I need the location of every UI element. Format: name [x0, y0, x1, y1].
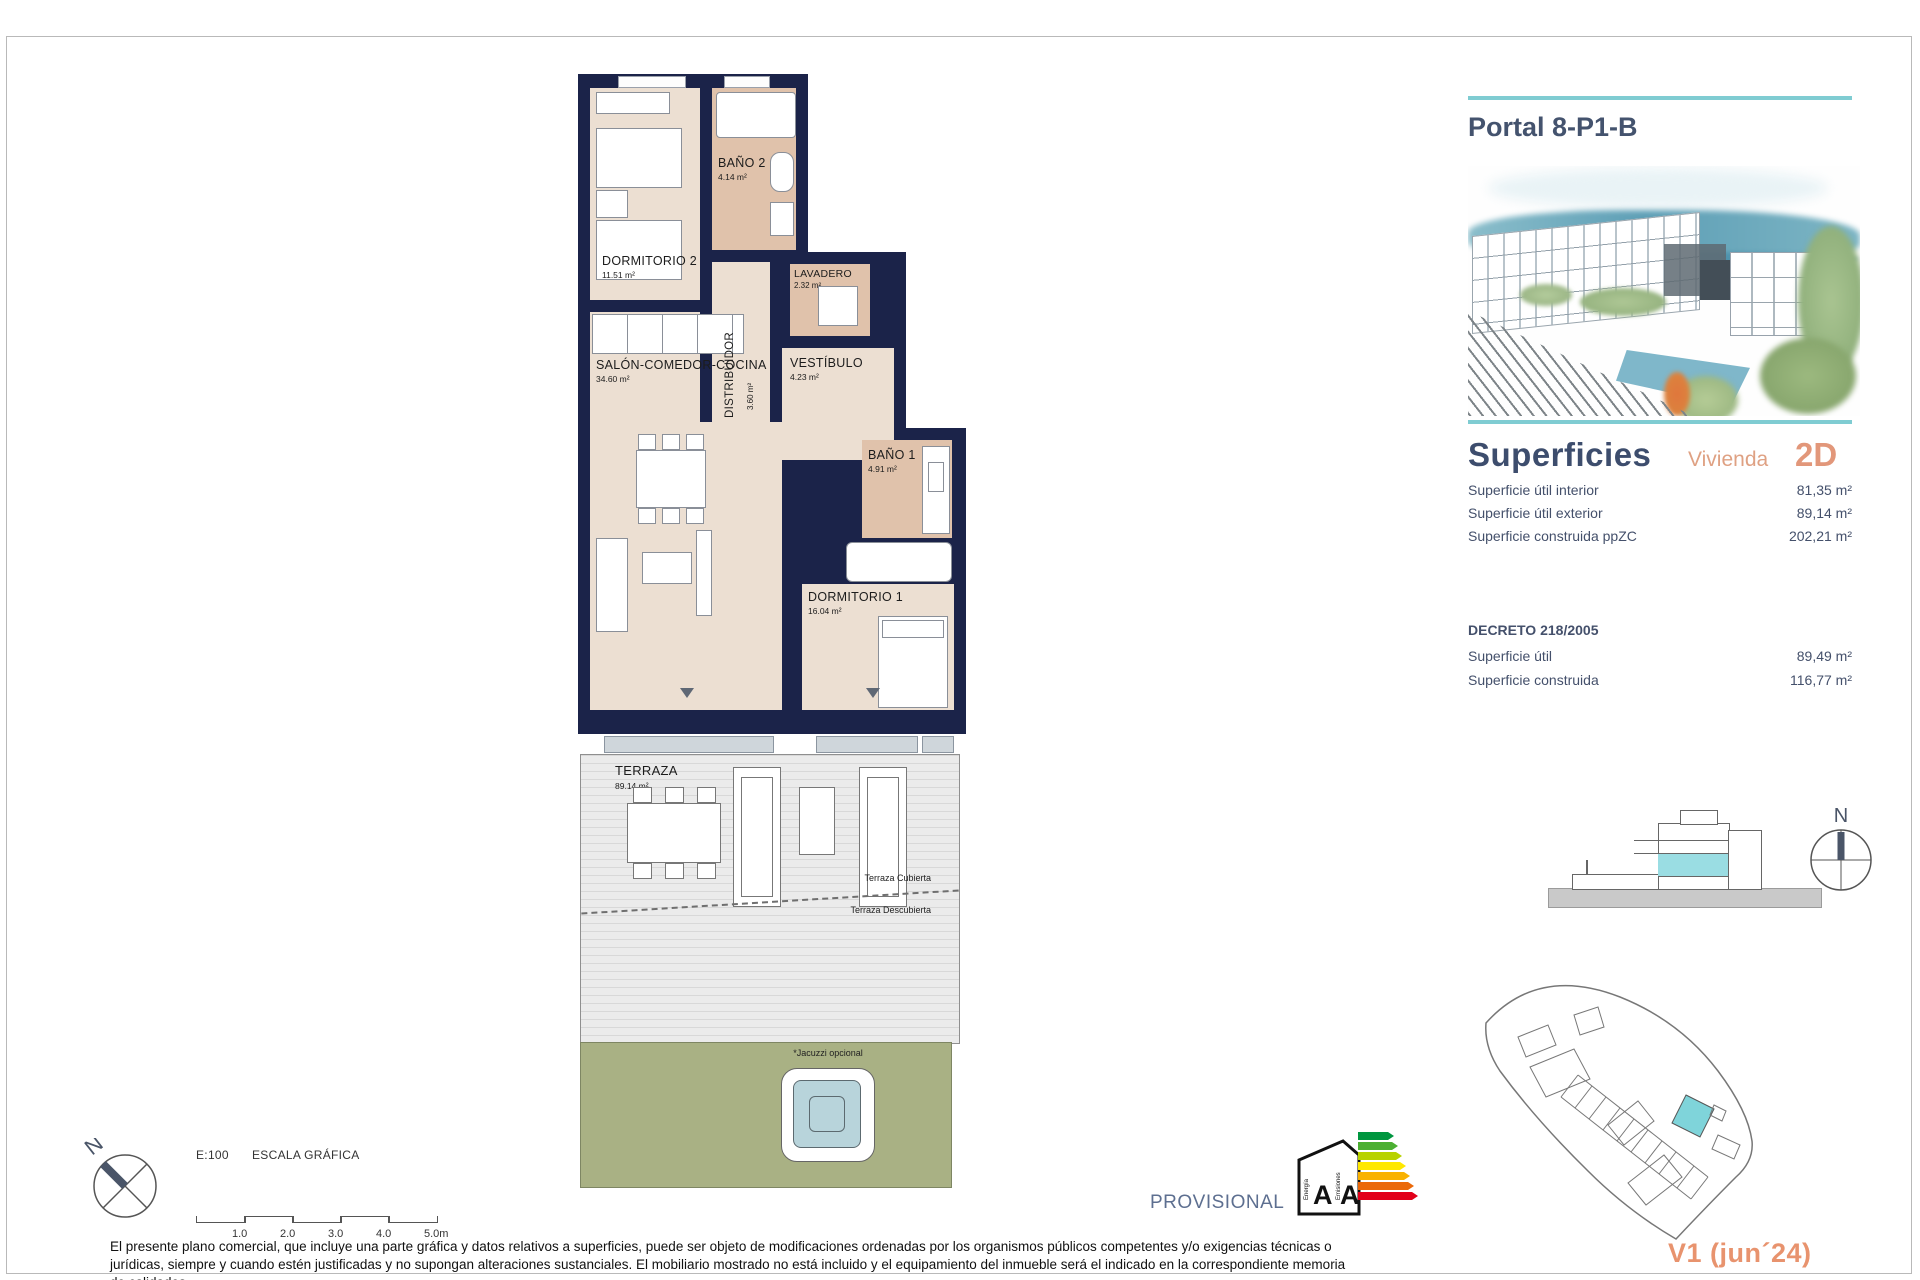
kitchen-counter: [592, 314, 744, 354]
room-label: DORMITORIO 2: [602, 254, 697, 268]
chair: [686, 508, 704, 524]
room-label: TERRAZA: [615, 763, 678, 778]
page-title: Portal 8-P1-B: [1468, 112, 1638, 143]
lawn: [1580, 288, 1666, 316]
chair: [633, 787, 652, 803]
room-label: VESTÍBULO: [790, 356, 863, 370]
chair: [662, 508, 680, 524]
bed-single: [596, 128, 682, 188]
shower: [716, 92, 796, 138]
tv-sideboard: [696, 530, 712, 616]
energy-bar-e: [1358, 1172, 1410, 1180]
row-value: 81,35 m²: [1797, 482, 1852, 498]
room-area: 4.91 m²: [868, 464, 897, 474]
energy-letter1: A: [1313, 1180, 1333, 1210]
lawn: [1520, 284, 1572, 306]
sky: [1488, 168, 1828, 208]
energy-certificate-icon: Energía A Emisiones A: [1296, 1132, 1426, 1218]
chair: [686, 434, 704, 450]
room-label: SALÓN-COMEDOR-COCINA: [596, 358, 767, 372]
room-area: 4.23 m²: [790, 372, 819, 382]
compass-north-label: N: [1834, 808, 1848, 827]
balcony-line: [1634, 840, 1658, 841]
north-compass-icon: N: [80, 1138, 170, 1228]
sun-lounger-inner: [741, 777, 773, 897]
energy-bar-b: [1358, 1142, 1398, 1150]
bathtub: [846, 542, 952, 582]
energy-bar-f: [1358, 1182, 1414, 1190]
coffee-table: [642, 552, 692, 584]
chair: [665, 787, 684, 803]
sliding-door: [604, 736, 774, 753]
room-label: BAÑO 2: [718, 156, 766, 170]
room-label: DISTRIBUIDOR: [724, 268, 736, 418]
decreto-row: Superficie construida 116,77 m²: [1468, 672, 1852, 688]
energy-axis1: Energía: [1304, 1178, 1310, 1200]
compass-north-label: N: [80, 1138, 108, 1160]
row-value: 202,21 m²: [1789, 528, 1852, 544]
energy-bar-a: [1358, 1132, 1394, 1140]
legal-disclaimer: El presente plano comercial, que incluye…: [110, 1238, 1358, 1280]
side-table: [799, 787, 835, 855]
entrance-arrow-icon: [866, 688, 880, 698]
podium: [1572, 874, 1660, 890]
ground: [1548, 888, 1822, 908]
chair: [662, 434, 680, 450]
teal-rule-top: [1468, 96, 1852, 100]
room-area: 34.60 m²: [596, 374, 630, 384]
pillow: [882, 620, 944, 638]
teal-rule-mid: [1468, 420, 1852, 424]
energy-bar-g: [1358, 1192, 1418, 1200]
wardrobe: [596, 92, 670, 114]
room-area: 2.32 m²: [794, 281, 821, 290]
decreto-row: Superficie útil 89,49 m²: [1468, 648, 1852, 664]
scale-title: ESCALA GRÁFICA: [252, 1148, 360, 1162]
roof-volume: [1680, 810, 1718, 825]
sliding-door: [922, 736, 954, 753]
annex-volume: [1728, 830, 1762, 890]
nightstand: [596, 190, 628, 218]
chair: [638, 508, 656, 524]
building-section-diagram: N: [1548, 790, 1888, 920]
room-area: 16.04 m²: [808, 606, 842, 616]
project-render-image: [1468, 166, 1860, 416]
room-label: DORMITORIO 1: [808, 590, 903, 604]
superficies-heading: Superficies: [1468, 436, 1651, 474]
vivienda-type: 2D: [1795, 436, 1837, 474]
balcony-line: [1634, 853, 1658, 854]
highlighted-floor: [1658, 853, 1728, 877]
decreto-heading: DECRETO 218/2005: [1468, 622, 1598, 638]
row-label: Superficie útil: [1468, 648, 1552, 664]
superficie-row: Superficie útil exterior 89,14 m²: [1468, 505, 1852, 521]
vivienda-label: Vivienda: [1688, 448, 1768, 472]
floor-plan: DORMITORIO 2 11.51 m² BAÑO 2 4.14 m² DIS…: [578, 60, 970, 1192]
chair: [697, 863, 716, 879]
energy-house-icon: Energía A Emisiones A: [1296, 1138, 1362, 1218]
sofa: [596, 538, 628, 632]
room-label: LAVADERO: [794, 268, 852, 280]
section-compass-icon: N: [1806, 808, 1876, 898]
scale-segment: [388, 1216, 438, 1223]
toilet: [770, 202, 794, 236]
room-area: 4.14 m²: [718, 172, 747, 182]
chair: [665, 863, 684, 879]
row-value: 89,14 m²: [1797, 505, 1852, 521]
provisional-label: PROVISIONAL: [1150, 1192, 1284, 1214]
entrance-arrow-icon: [680, 688, 694, 698]
site-plan: [1478, 975, 1818, 1260]
window: [724, 76, 770, 88]
scale-segment: [340, 1216, 390, 1223]
chair: [638, 434, 656, 450]
sink: [928, 462, 944, 492]
jacuzzi-seat: [809, 1096, 845, 1132]
terrace-covered-label: Terraza Cubierta: [781, 873, 931, 883]
room-area: 11.51 m²: [602, 270, 635, 280]
scale-segment: [292, 1216, 342, 1223]
jacuzzi-note: *Jacuzzi opcional: [728, 1048, 928, 1058]
row-label: Superficie útil exterior: [1468, 505, 1603, 521]
sink: [770, 152, 794, 192]
energy-bar-d: [1358, 1162, 1406, 1170]
scale-ratio: E:100: [196, 1148, 229, 1162]
dining-table: [636, 450, 706, 508]
chair: [633, 863, 652, 879]
energy-letter2: A: [1340, 1180, 1360, 1210]
plan-sheet: { "panel": { "title": "Portal 8-P1-B", "…: [0, 0, 1920, 1280]
row-value: 89,49 m²: [1797, 648, 1852, 664]
wall-tick: [1586, 860, 1588, 874]
terrace: TERRAZA 89.14 m² Terraza Cubierta Terraz…: [580, 754, 960, 1044]
superficie-row: Superficie útil interior 81,35 m²: [1468, 482, 1852, 498]
garden: [580, 1042, 952, 1188]
room-area: 3.60 m²: [746, 340, 755, 410]
row-label: Superficie construida: [1468, 672, 1599, 688]
row-label: Superficie construida ppZC: [1468, 528, 1637, 544]
terrace-uncovered-label: Terraza Descubierta: [771, 905, 931, 915]
scale-segment: [244, 1216, 294, 1223]
room-label: BAÑO 1: [868, 448, 916, 462]
scale-segment: [196, 1216, 246, 1223]
garden-foreground: [1760, 338, 1856, 414]
superficie-row: Superficie construida ppZC 202,21 m²: [1468, 528, 1852, 544]
chair: [697, 787, 716, 803]
row-label: Superficie útil interior: [1468, 482, 1599, 498]
washing-machine: [818, 286, 858, 326]
energy-bar-c: [1358, 1152, 1402, 1160]
plan-version: V1 (jun´24): [1668, 1238, 1812, 1269]
window: [618, 76, 686, 88]
terrace-table: [627, 803, 721, 863]
floor-line: [1658, 840, 1728, 841]
sliding-door: [816, 736, 918, 753]
row-value: 116,77 m²: [1790, 672, 1852, 688]
